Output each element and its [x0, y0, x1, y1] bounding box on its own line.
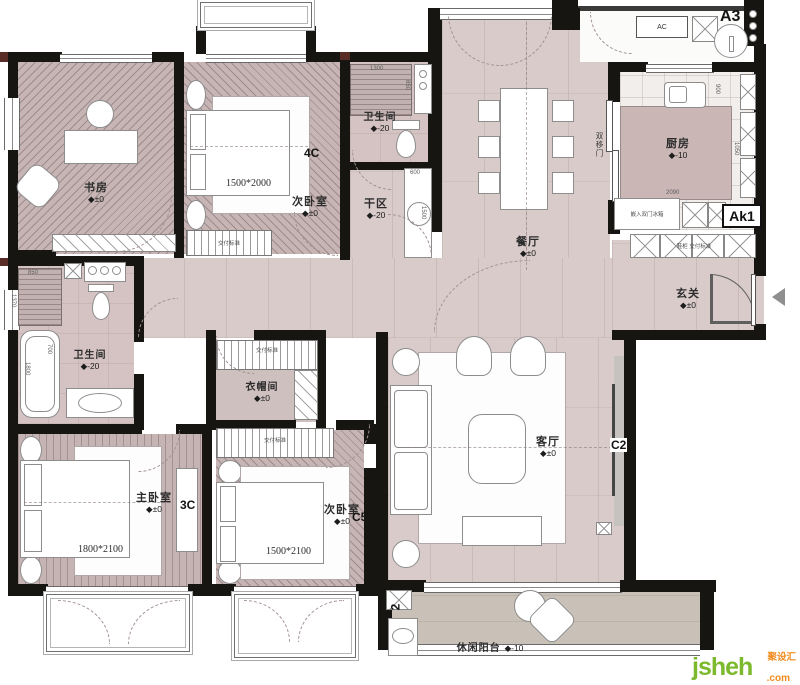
room-label-bedroom-a: 次卧室 ◆±0 [292, 196, 328, 218]
room-level: ◆±0 [536, 449, 560, 459]
room-level: ◆-10 [666, 151, 690, 161]
fixture [88, 266, 97, 275]
toilet-tank [88, 284, 114, 292]
wall [14, 52, 62, 62]
pillow [220, 526, 236, 562]
room-name: 餐厅 [516, 236, 540, 248]
bed-size-label: 1800*2100 [78, 544, 123, 555]
window [412, 644, 700, 656]
room-label-bath-a: 卫生间 ◆-20 [364, 112, 397, 133]
room-name: 玄关 [676, 288, 700, 300]
side-table [392, 540, 420, 568]
wall [8, 424, 142, 434]
room-level: ◆±0 [136, 505, 172, 515]
room-name: 书房 [84, 182, 108, 194]
corridor-floor [142, 258, 620, 338]
chair [552, 136, 574, 158]
room-label-study: 书房 ◆±0 [84, 182, 108, 204]
cabinet [64, 263, 82, 279]
room-name: 卫生间 [74, 350, 107, 361]
elevation-marker-c2: C2 [610, 438, 627, 452]
wardrobe-note: 交付标准 [256, 346, 278, 354]
wall [206, 330, 216, 426]
wall [348, 52, 432, 62]
base-cabinet [682, 202, 708, 228]
window [646, 64, 714, 73]
room-level: ◆-20 [74, 362, 107, 372]
fixture [749, 22, 757, 30]
wall [8, 584, 48, 596]
pillow [190, 114, 206, 150]
tall-cabinet [740, 158, 756, 198]
marker-text: Ak1 [729, 208, 755, 224]
wall [376, 332, 388, 586]
wardrobe-note: 交付标准 [264, 436, 286, 444]
room-label-master-bedroom: 主卧室 ◆±0 [136, 492, 172, 514]
room-label-dry-area: 干区 ◆-20 [364, 198, 388, 220]
coffee-table [468, 414, 526, 484]
wall [8, 330, 18, 592]
wall [364, 468, 376, 588]
room-level: ◆-10 [505, 643, 524, 653]
room-label-master-bath: 卫生间 ◆-20 [74, 350, 107, 371]
sliding-door-leaf [606, 100, 613, 152]
dim-label: 1050 [733, 142, 739, 155]
dim-label: 700 [46, 344, 52, 354]
dressing-cabinet [294, 370, 318, 420]
sofa-cushion [394, 452, 428, 510]
wash-basin [78, 393, 122, 413]
wall [134, 374, 144, 430]
wall [8, 150, 18, 258]
shower [18, 268, 62, 326]
nightstand [186, 200, 206, 230]
pillow [220, 486, 236, 522]
dim-label: 600 [410, 170, 420, 176]
floor-plan: AC [0, 0, 800, 685]
heater-pipe [729, 36, 734, 52]
site-logo: jsheh 聚设汇 .com [692, 647, 796, 683]
room-label-balcony: 休闲阳台◆-10 [457, 643, 524, 655]
elevation-marker-ak1: Ak1 [722, 204, 762, 228]
room-level: ◆±0 [516, 249, 540, 259]
dim-label: 1370 [10, 294, 16, 307]
dining-table [500, 88, 548, 210]
window [4, 98, 20, 150]
pillow [190, 154, 206, 190]
dim-label: 1500 [420, 206, 426, 219]
wall [700, 588, 714, 650]
shoe-cabinet [724, 234, 756, 258]
shoe-cabinet-label: 鞋柜 交付标准 [677, 242, 712, 250]
chair [478, 100, 500, 122]
bay-window [200, 2, 312, 28]
window [206, 54, 306, 63]
ac-label: AC [657, 24, 667, 31]
chair [552, 172, 574, 194]
chair [552, 100, 574, 122]
wall [202, 424, 212, 588]
desk [64, 130, 138, 164]
nightstand [186, 80, 206, 110]
logo-tld-text: .com [767, 673, 790, 684]
wall [196, 26, 206, 54]
wall [624, 338, 636, 588]
basin [392, 628, 414, 644]
wall [712, 62, 756, 72]
desk-chair [86, 100, 114, 128]
dim-label: 1300 [370, 66, 383, 72]
fixture [749, 34, 757, 42]
sliding-door-leaf [612, 150, 619, 202]
room-level: ◆±0 [246, 394, 279, 404]
centerline [190, 146, 308, 147]
pillow [24, 464, 42, 506]
elevation-marker-a3: A3 [720, 8, 740, 26]
window [60, 54, 154, 63]
dim-label: 2090 [666, 190, 679, 196]
room-name: 次卧室 [292, 196, 328, 208]
section-mark [340, 52, 350, 60]
fixture [749, 10, 757, 18]
room-label-dining: 餐厅 ◆±0 [516, 236, 540, 258]
entry-arrow-icon [772, 288, 785, 306]
nightstand [20, 556, 42, 584]
wall [174, 52, 184, 258]
ac-unit: AC [636, 16, 688, 38]
shoe-cabinet [630, 234, 660, 258]
dim-label: 1800 [24, 362, 30, 375]
sofa-cushion [394, 390, 428, 448]
room-name: 客厅 [536, 436, 560, 448]
elevation-marker-4c: 4C [304, 146, 319, 160]
room-level: ◆±0 [84, 195, 108, 205]
wall [340, 52, 350, 260]
chair [478, 172, 500, 194]
room-name: 休闲阳台 [457, 643, 501, 654]
fixture [419, 70, 427, 78]
logo-brand-text: jsheh [692, 653, 752, 682]
room-name: 干区 [364, 198, 388, 210]
sliding-door-label: 双移门 [594, 132, 605, 158]
toilet [396, 130, 416, 158]
section-mark [0, 52, 8, 62]
room-label-kitchen: 厨房 ◆-10 [666, 138, 690, 160]
entry-door-leaf [751, 274, 756, 326]
wardrobe-note: 交付标准 [218, 239, 240, 247]
tall-cabinet [740, 74, 756, 110]
room-level: ◆±0 [292, 209, 328, 219]
room-label-living: 客厅 ◆±0 [536, 436, 560, 458]
room-label-entry: 玄关 ◆±0 [676, 288, 700, 310]
cabinet [52, 234, 176, 252]
fridge-label: 嵌入双门冰箱 [630, 210, 663, 218]
armchair [510, 336, 546, 376]
wall [216, 584, 236, 596]
room-name: 衣帽间 [246, 382, 279, 393]
section-mark [0, 258, 8, 266]
wall [618, 62, 648, 72]
elevation-marker-c5: C5 [352, 510, 367, 524]
room-name: 主卧室 [136, 492, 172, 504]
dim-label: 850 [28, 270, 38, 276]
bed-size-label: 1500*2000 [226, 178, 271, 189]
side-table [392, 348, 420, 376]
equipment-box [596, 522, 612, 535]
fixture [419, 82, 427, 90]
logo-cn-text: 聚设汇 [767, 649, 796, 663]
elevation-marker-2: 2 [388, 604, 402, 611]
wall [306, 26, 316, 54]
tall-cabinet [740, 112, 756, 156]
room-level: ◆-20 [364, 124, 397, 134]
centerline [398, 447, 612, 448]
room-level: ◆-20 [364, 211, 388, 221]
toilet [92, 292, 110, 320]
dim-label: 900 [714, 84, 720, 94]
room-name: 卫生间 [364, 112, 397, 123]
fixture [112, 266, 121, 275]
fixture [100, 266, 109, 275]
room-level: ◆±0 [676, 301, 700, 311]
centerline [526, 22, 527, 270]
chair [478, 136, 500, 158]
elevation-marker-3c: 3C [180, 498, 195, 512]
bed-size-label: 1500*2100 [266, 546, 311, 557]
tv-bench [462, 516, 542, 546]
wall [570, 8, 580, 30]
room-label-cloakroom: 衣帽间 ◆±0 [246, 382, 279, 403]
room-name: 厨房 [666, 138, 690, 150]
sink-bowl [669, 86, 687, 103]
dim-label: 850 [404, 80, 410, 90]
pillow [24, 510, 42, 552]
stool [218, 460, 242, 484]
armchair [456, 336, 492, 376]
